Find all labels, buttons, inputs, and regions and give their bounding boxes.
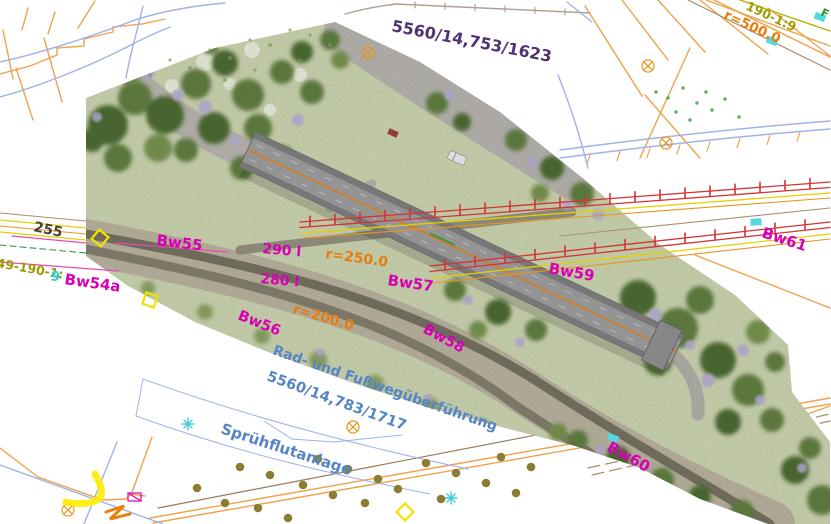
plan-viewport[interactable]: 5560/14,753/1623 190-1:9 r=500.0 F 255 4… [0, 0, 831, 524]
site-plan-canvas[interactable]: 5560/14,753/1623 190-1:9 r=500.0 F 255 4… [0, 0, 831, 524]
label-signal-280: 280 l [260, 271, 300, 290]
label-signal-290: 290 l [262, 241, 302, 260]
